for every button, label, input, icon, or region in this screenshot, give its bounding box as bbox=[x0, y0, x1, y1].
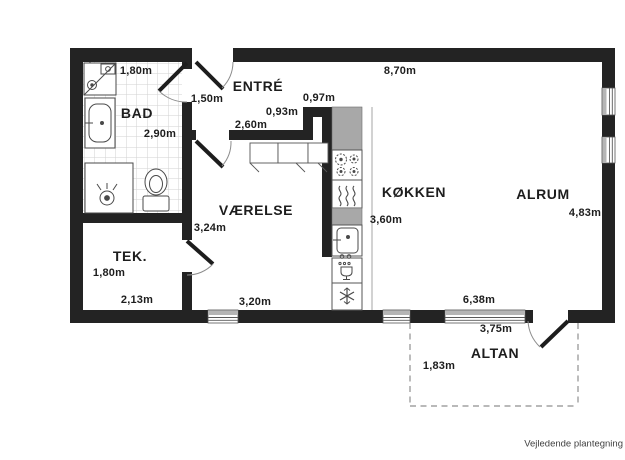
wardrobes bbox=[250, 143, 328, 172]
window-right-1 bbox=[602, 88, 615, 115]
right-wall-seg bbox=[602, 163, 615, 323]
room-label-alrum: ALRUM bbox=[516, 186, 570, 202]
right-wall-seg bbox=[602, 48, 615, 88]
room-label-vaerelse: VÆRELSE bbox=[219, 202, 293, 218]
kitchen-counter bbox=[332, 208, 362, 225]
dim-label-altan-door-span: 3,75m bbox=[480, 323, 512, 335]
toilet-icon bbox=[143, 169, 169, 211]
window-right-2 bbox=[602, 137, 615, 163]
bathroom-east-wall bbox=[182, 102, 192, 223]
window-koekken bbox=[383, 310, 410, 323]
sink-icon bbox=[332, 225, 362, 256]
freezer-icon bbox=[332, 283, 362, 310]
dim-label-alrum-width: 4,83m bbox=[569, 207, 601, 219]
dishwasher-icon bbox=[332, 255, 362, 283]
dim-label-entre-opening: 1,50m bbox=[191, 93, 223, 105]
bottom-wall-seg bbox=[525, 310, 533, 323]
room-label-bad: BAD bbox=[121, 105, 153, 121]
dim-label-tek-depth: 1,80m bbox=[93, 267, 125, 279]
entrance-door bbox=[196, 62, 233, 89]
floor-plan: BAD ENTRÉ VÆRELSE KØKKEN ALRUM TEK. ALTA… bbox=[0, 0, 625, 460]
dim-label-top-width: 8,70m bbox=[384, 65, 416, 77]
right-wall-seg bbox=[602, 115, 615, 137]
kitchen-counter bbox=[332, 107, 362, 150]
kitchen-wall bbox=[322, 107, 332, 257]
wardrobe-icon bbox=[250, 143, 278, 163]
room-label-altan: ALTAN bbox=[471, 345, 519, 361]
washing-machine-icon bbox=[85, 163, 133, 213]
entre-south-wall-left bbox=[182, 130, 196, 140]
dim-label-vaerelse-width: 3,24m bbox=[194, 222, 226, 234]
bathroom-south-wall bbox=[70, 213, 192, 223]
room-label-tek: TEK. bbox=[113, 248, 147, 264]
dim-label-bad-depth: 2,90m bbox=[144, 128, 176, 140]
window-alrum bbox=[445, 310, 525, 323]
bedroom-door bbox=[196, 141, 231, 167]
bottom-wall-seg bbox=[70, 310, 208, 323]
dim-label-tek-width: 2,13m bbox=[121, 294, 153, 306]
dim-label-step: 0,93m bbox=[266, 106, 298, 118]
kitchen-strip bbox=[332, 107, 362, 310]
stove-icon bbox=[332, 150, 362, 180]
dim-label-vaerelse-south: 3,20m bbox=[239, 296, 271, 308]
dim-label-koekken-depth: 3,60m bbox=[370, 214, 402, 226]
washbasin-icon bbox=[85, 98, 115, 148]
dim-label-bad-width: 1,80m bbox=[120, 65, 152, 77]
dim-label-entre-wall: 2,60m bbox=[235, 119, 267, 131]
wardrobe-icon bbox=[278, 143, 308, 163]
dim-label-altan-width: 6,38m bbox=[463, 294, 495, 306]
bottom-wall-seg bbox=[238, 310, 383, 323]
wardrobe-icon bbox=[308, 143, 328, 163]
tek-east-wall-upper bbox=[182, 223, 192, 240]
balcony-door bbox=[528, 321, 568, 347]
room-label-koekken: KØKKEN bbox=[382, 184, 446, 200]
dim-label-passage: 0,97m bbox=[303, 92, 335, 104]
left-wall bbox=[70, 48, 83, 323]
tek-east-wall-lower bbox=[182, 272, 192, 310]
shower-icon bbox=[84, 63, 116, 95]
top-wall-left bbox=[70, 48, 192, 62]
room-label-entre: ENTRÉ bbox=[233, 78, 283, 94]
entre-south-wall-right bbox=[229, 130, 313, 140]
tek-room-door bbox=[187, 241, 213, 275]
bottom-wall-seg bbox=[410, 310, 445, 323]
dim-label-altan-depth: 1,83m bbox=[423, 360, 455, 372]
window-vaerelse bbox=[208, 310, 238, 323]
floor-plan-drawing bbox=[0, 0, 625, 460]
top-wall-right bbox=[233, 48, 615, 62]
bottom-wall-seg bbox=[568, 310, 615, 323]
disclaimer-note: Vejledende plantegning bbox=[524, 439, 623, 450]
oven-icon bbox=[332, 180, 362, 208]
